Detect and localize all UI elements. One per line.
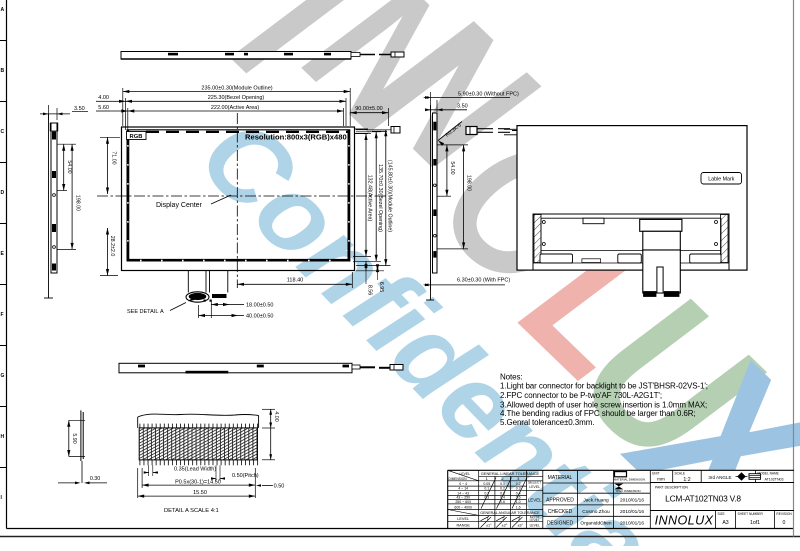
svg-text:3.Allowed depth of user hole s: 3.Allowed depth of user hole screw inser…	[500, 400, 707, 409]
svg-text:P0.5x(30-1)=14.50: P0.5x(30-1)=14.50	[175, 480, 221, 486]
svg-text:LCM-AT102TN03 V.8: LCM-AT102TN03 V.8	[665, 494, 741, 504]
svg-text:MODEL NAME: MODEL NAME	[758, 471, 779, 475]
svg-text:2010/01/16: 2010/01/16	[620, 498, 644, 504]
svg-text:5.Genral tolerance±0.3mm.: 5.Genral tolerance±0.3mm.	[500, 418, 594, 427]
svg-text:LEVEL: LEVEL	[530, 519, 540, 523]
svg-text:SIZE: SIZE	[718, 512, 725, 516]
svg-text:DESIGNED: DESIGNED	[547, 521, 574, 527]
svg-text:4 ~ 14: 4 ~ 14	[458, 486, 468, 490]
svg-text:2010/01/16: 2010/01/16	[620, 521, 644, 527]
svg-text:MATERIAL DIMENSION: MATERIAL DIMENSION	[614, 478, 645, 482]
svg-text:H: H	[1, 434, 5, 440]
svg-text:1of1: 1of1	[750, 520, 760, 526]
svg-text:54.00: 54.00	[66, 160, 72, 173]
svg-text:mm: mm	[657, 477, 665, 482]
svg-text:LEVEL: LEVEL	[457, 517, 469, 521]
svg-text:D: D	[1, 190, 5, 196]
svg-text:5.60: 5.60	[98, 105, 109, 111]
svg-text:LEVEL: LEVEL	[459, 472, 470, 476]
svg-text:1:2: 1:2	[683, 477, 690, 483]
svg-text:G: G	[1, 373, 5, 379]
svg-text:2010/01/16: 2010/01/16	[620, 509, 644, 515]
svg-text:4.00: 4.00	[273, 411, 279, 421]
svg-text:Notes:: Notes:	[500, 373, 523, 382]
svg-text:43 ~ 250: 43 ~ 250	[456, 496, 470, 500]
svg-text:DIMENSION: DIMENSION	[449, 477, 468, 481]
svg-text:222.00(Active Area): 222.00(Active Area)	[211, 105, 259, 111]
svg-text:3rd ANGLE: 3rd ANGLE	[708, 475, 731, 480]
svg-text:OrganiddChen: OrganiddChen	[580, 521, 612, 527]
svg-text:±3°: ±3°	[517, 523, 523, 527]
svg-text:0.05: 0.05	[483, 482, 490, 486]
svg-text:90.00±5.00: 90.00±5.00	[355, 106, 383, 112]
svg-text:28.2±2.0: 28.2±2.0	[109, 236, 115, 257]
svg-text:0.35(Lead Width): 0.35(Lead Width)	[174, 467, 216, 473]
svg-text:0.50: 0.50	[274, 484, 285, 490]
svg-text:GENERAL LINEAR TOLERANCE: GENERAL LINEAR TOLERANCE	[481, 471, 540, 476]
svg-text:0.2: 0.2	[500, 486, 505, 490]
svg-text:1.Light bar connector for back: 1.Light bar connector for backlight to b…	[500, 382, 708, 391]
svg-text:Jack.Huang: Jack.Huang	[583, 498, 609, 504]
svg-text:0.1: 0.1	[484, 486, 489, 490]
svg-text:18.00±0.50: 18.00±0.50	[246, 303, 274, 309]
svg-text:APPROVED: APPROVED	[546, 498, 574, 504]
svg-text:A: A	[1, 7, 5, 13]
svg-text:A: A	[160, 309, 164, 315]
svg-text:SELECT: SELECT	[528, 481, 541, 485]
svg-text:±1°: ±1°	[486, 523, 492, 527]
svg-text:3.50: 3.50	[457, 104, 468, 110]
svg-text:1.6: 1.6	[516, 505, 521, 509]
svg-text:PART DESCRIPTION: PART DESCRIPTION	[655, 486, 688, 490]
svg-text:4.The bending radius of FPC sh: 4.The bending radius of FPC should be la…	[500, 409, 696, 418]
svg-text:SCALE: SCALE	[675, 471, 685, 475]
svg-text:198.00: 198.00	[466, 175, 472, 191]
svg-text:2.FPC connector to be P-two'AF: 2.FPC connector to be P-two'AF 730L-A2G1…	[500, 391, 662, 400]
svg-text:RANGE: RANGE	[456, 523, 470, 527]
svg-text:15.50: 15.50	[193, 490, 207, 496]
svg-text:(145.80±0.30)(Module Outline): (145.80±0.30)(Module Outline)	[387, 160, 393, 232]
svg-text:Resolution:800x3(RGB)x480: Resolution:800x3(RGB)x480	[245, 133, 347, 142]
svg-text:F: F	[1, 312, 4, 318]
svg-text:Cosmo.Zhou: Cosmo.Zhou	[582, 509, 610, 515]
svg-text:SHEET NUMBER: SHEET NUMBER	[738, 512, 764, 516]
svg-text:132.48(Active Area): 132.48(Active Area)	[367, 175, 373, 222]
svg-text:6.95: 6.95	[378, 282, 384, 292]
svg-text:1.0: 1.0	[516, 500, 521, 504]
svg-text:LEVEL: LEVEL	[528, 498, 543, 503]
svg-text:0.1: 0.1	[500, 482, 505, 486]
svg-text:CHECKED: CHECKED	[548, 509, 573, 515]
svg-text:A3: A3	[722, 520, 728, 526]
svg-text:5.90: 5.90	[71, 433, 77, 443]
svg-text:REVISION: REVISION	[776, 512, 792, 516]
svg-text:118.40: 118.40	[287, 278, 303, 284]
svg-text:Display Center: Display Center	[156, 202, 203, 209]
svg-text:0 ~ 4: 0 ~ 4	[459, 482, 467, 486]
svg-text:6.30±0.30 (With FPC): 6.30±0.30 (With FPC)	[457, 278, 510, 284]
svg-text:GENERAL ANGULAR TOLERANCE: GENERAL ANGULAR TOLERANCE	[480, 511, 540, 515]
svg-text:B: B	[1, 68, 5, 74]
svg-text:0.2: 0.2	[516, 482, 521, 486]
svg-text:0.50(Pitch): 0.50(Pitch)	[232, 473, 259, 479]
svg-text:40.00±0.50: 40.00±0.50	[246, 314, 274, 320]
svg-text:SEE DETAIL: SEE DETAIL	[127, 309, 158, 315]
svg-text:5.90±0.30 (Without FPC): 5.90±0.30 (Without FPC)	[458, 92, 519, 98]
svg-text:0: 0	[783, 520, 786, 526]
svg-text:250 ~ 600: 250 ~ 600	[455, 500, 471, 504]
svg-text:AT102TN03: AT102TN03	[764, 478, 783, 482]
svg-text:0.3: 0.3	[516, 486, 521, 490]
svg-text:3.50: 3.50	[74, 106, 85, 112]
svg-text:MATERIAL: MATERIAL	[548, 475, 573, 481]
svg-text:SPEC DIMENSION: SPEC DIMENSION	[615, 489, 640, 493]
svg-text:0.6: 0.6	[500, 500, 505, 504]
svg-text:LEVEL: LEVEL	[530, 523, 540, 527]
svg-text:8.56: 8.56	[366, 285, 372, 295]
svg-text:225.30(Bezel Opening): 225.30(Bezel Opening)	[208, 95, 265, 101]
svg-text:54.00: 54.00	[449, 161, 455, 174]
svg-text:71.00: 71.00	[111, 151, 117, 164]
svg-text:±2°: ±2°	[502, 523, 508, 527]
svg-text:INNOLUX: INNOLUX	[655, 513, 714, 527]
svg-text:0.30: 0.30	[90, 476, 100, 482]
svg-text:198.00: 198.00	[74, 195, 80, 211]
svg-text:135.70±0.30(Bezel Opening): 135.70±0.30(Bezel Opening)	[377, 164, 383, 232]
svg-text:UNIT: UNIT	[652, 471, 659, 475]
svg-text:DETAIL A SCALE 4:1: DETAIL A SCALE 4:1	[164, 508, 219, 514]
svg-text:600 ~ 4000: 600 ~ 4000	[454, 505, 472, 509]
svg-text:Lable Mark: Lable Mark	[708, 177, 735, 183]
svg-text:C: C	[1, 129, 5, 135]
svg-text:235.00±0.30(Module Outline): 235.00±0.30(Module Outline)	[201, 85, 272, 91]
svg-text:RGB: RGB	[130, 134, 143, 140]
svg-text:4.00: 4.00	[98, 95, 109, 101]
svg-text:LEVEL: LEVEL	[529, 485, 540, 489]
